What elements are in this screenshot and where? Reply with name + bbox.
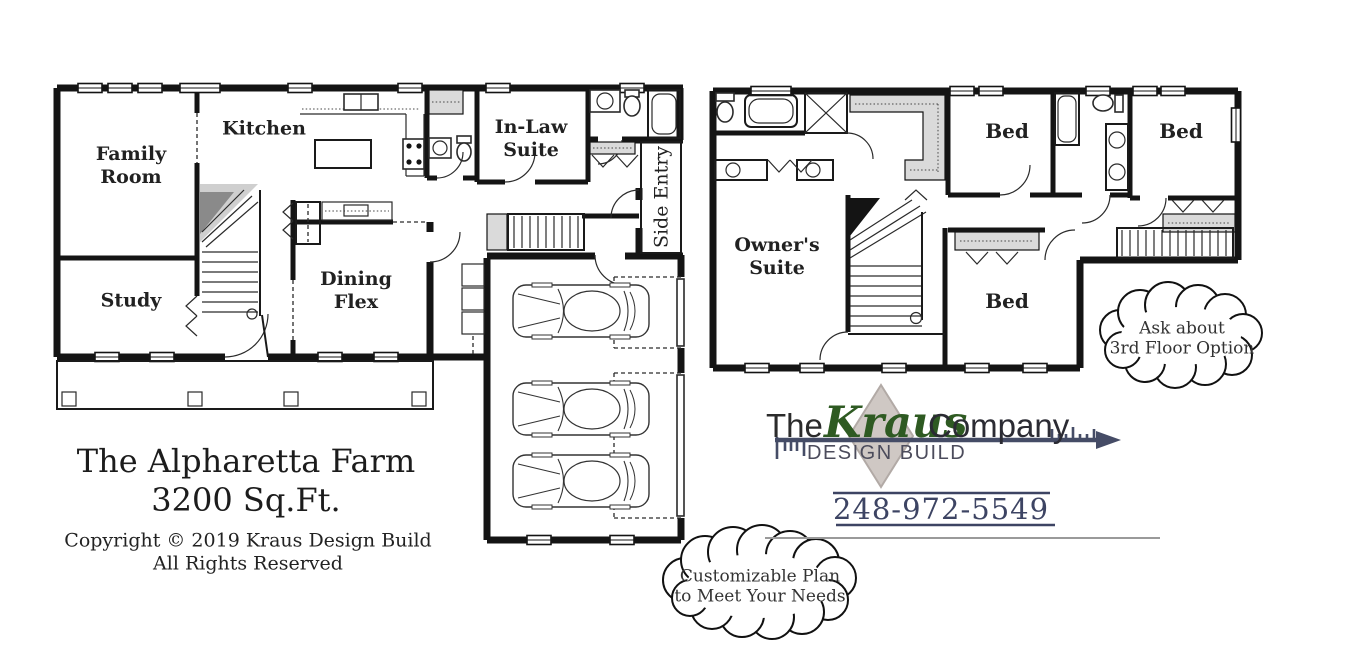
window-icon bbox=[1086, 87, 1110, 96]
closet-bifold-icon bbox=[905, 190, 927, 200]
window-icon bbox=[486, 84, 510, 93]
bathtub-icon bbox=[648, 90, 680, 138]
door-swing-icon bbox=[430, 232, 460, 262]
closet-bifold-icon bbox=[1172, 200, 1224, 212]
mudroom-lockers bbox=[462, 264, 484, 354]
room-label-side-entry: Side Entry bbox=[651, 146, 674, 248]
window-icon bbox=[745, 364, 769, 373]
room-label-bed-3: Bed bbox=[985, 289, 1029, 313]
window-icon bbox=[610, 536, 634, 545]
door-swing-icon bbox=[847, 133, 873, 159]
garage bbox=[513, 255, 684, 518]
porch-post-icon bbox=[188, 392, 202, 406]
window-icon bbox=[108, 84, 132, 93]
door-swing-icon bbox=[1045, 230, 1075, 260]
window-icon bbox=[138, 84, 162, 93]
porch-post-icon bbox=[284, 392, 298, 406]
window-icon bbox=[180, 84, 220, 93]
door-swing-icon bbox=[1000, 165, 1030, 195]
front-door bbox=[225, 314, 268, 357]
sink-icon bbox=[726, 163, 740, 177]
window-icon bbox=[78, 84, 102, 93]
car-icon bbox=[513, 381, 649, 437]
callout-customizable: Customizable Plan to Meet Your Needs bbox=[674, 567, 845, 608]
garage-door-panel bbox=[677, 279, 684, 346]
callout-third-floor: Ask about 3rd Floor Option bbox=[1110, 319, 1255, 360]
window-icon bbox=[979, 87, 1003, 96]
logo-tagline: DESIGN BUILD bbox=[807, 442, 966, 465]
back-stairs-icon bbox=[487, 214, 584, 250]
stairs-icon bbox=[848, 198, 945, 334]
owners-bath bbox=[715, 93, 873, 180]
kitchen-fixtures bbox=[300, 94, 424, 176]
room-label-kitchen: Kitchen bbox=[222, 118, 306, 141]
shower-icon bbox=[805, 93, 847, 133]
plan-area: 3200 Sq.Ft. bbox=[151, 481, 340, 519]
car-icon bbox=[513, 453, 649, 509]
sink-icon bbox=[1109, 132, 1125, 148]
room-label-study: Study bbox=[101, 290, 162, 313]
hall-closet bbox=[590, 142, 638, 167]
window-icon bbox=[800, 364, 824, 373]
window-icon bbox=[288, 84, 312, 93]
bed3-closet bbox=[955, 232, 1039, 264]
sink-icon bbox=[1109, 164, 1125, 180]
cased-openings bbox=[197, 113, 428, 340]
copyright-line-2: All Rights Reserved bbox=[153, 553, 343, 576]
closet-bifold-icon bbox=[966, 252, 1018, 264]
porch-post-icon bbox=[412, 392, 426, 406]
toilet-icon bbox=[624, 96, 640, 116]
window-icon bbox=[950, 87, 974, 96]
floor-plan-sheet: Family Room Study Kitchen Dining Flex In… bbox=[0, 0, 1367, 655]
closet-bifold-icon bbox=[768, 160, 812, 172]
window-icon bbox=[882, 364, 906, 373]
room-label-owners-suite: Owner's Suite bbox=[734, 234, 819, 280]
door-swing-icon bbox=[1138, 198, 1166, 226]
kitchen-island bbox=[315, 140, 371, 168]
window-icon bbox=[527, 536, 551, 545]
car-icon bbox=[513, 283, 649, 339]
toilet-icon bbox=[457, 143, 471, 161]
hall-bath-second-floor bbox=[1055, 93, 1128, 223]
closet-bifold-icon bbox=[186, 296, 197, 336]
garage-door-panel bbox=[677, 375, 684, 516]
door-swing-icon bbox=[595, 255, 625, 285]
window-icon bbox=[1161, 87, 1185, 96]
front-porch bbox=[57, 361, 433, 409]
window-icon bbox=[1023, 364, 1047, 373]
copyright-line-1: Copyright © 2019 Kraus Design Build bbox=[64, 530, 431, 553]
range-icon bbox=[403, 139, 424, 169]
toilet-icon bbox=[717, 102, 733, 122]
door-swing-icon bbox=[820, 332, 848, 360]
logo-company: Company bbox=[928, 407, 1069, 445]
window-icon bbox=[398, 84, 422, 93]
room-label-bed-2: Bed bbox=[1159, 119, 1203, 143]
logo-the: The bbox=[766, 407, 823, 445]
room-label-in-law-suite: In-Law Suite bbox=[495, 116, 568, 162]
inlaw-bath bbox=[429, 90, 471, 178]
door-swing-icon bbox=[1082, 195, 1110, 223]
room-label-dining-flex: Dining Flex bbox=[320, 268, 392, 314]
room-label-bed-1: Bed bbox=[985, 119, 1029, 143]
window-icon bbox=[1133, 87, 1157, 96]
bathtub-icon bbox=[745, 95, 797, 127]
walk-in-closet bbox=[850, 95, 945, 200]
window-icon bbox=[965, 364, 989, 373]
phone-number: 248-972-5549 bbox=[833, 492, 1049, 526]
plan-title: The Alpharetta Farm bbox=[77, 442, 416, 480]
window-icon bbox=[1232, 108, 1241, 142]
room-label-family-room: Family Room bbox=[96, 143, 166, 189]
main-stairs-icon bbox=[200, 184, 260, 319]
toilet-icon bbox=[1093, 95, 1113, 111]
porch-post-icon bbox=[62, 392, 76, 406]
